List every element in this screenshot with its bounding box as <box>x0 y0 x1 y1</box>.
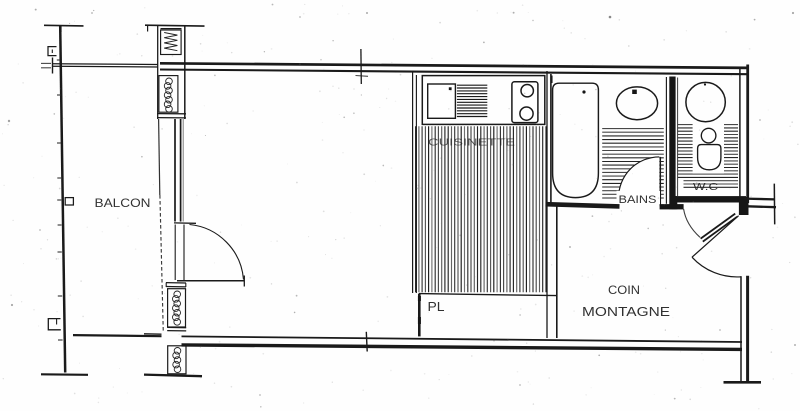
svg-text:MONTAGNE: MONTAGNE <box>582 305 670 319</box>
svg-text:PL: PL <box>428 300 445 314</box>
svg-text:BALCON: BALCON <box>95 196 151 210</box>
svg-text:COIN: COIN <box>608 283 640 297</box>
svg-text:CUISINETTE: CUISINETTE <box>428 137 515 149</box>
svg-text:W.C: W.C <box>693 182 718 193</box>
svg-text:BAINS: BAINS <box>619 194 657 206</box>
